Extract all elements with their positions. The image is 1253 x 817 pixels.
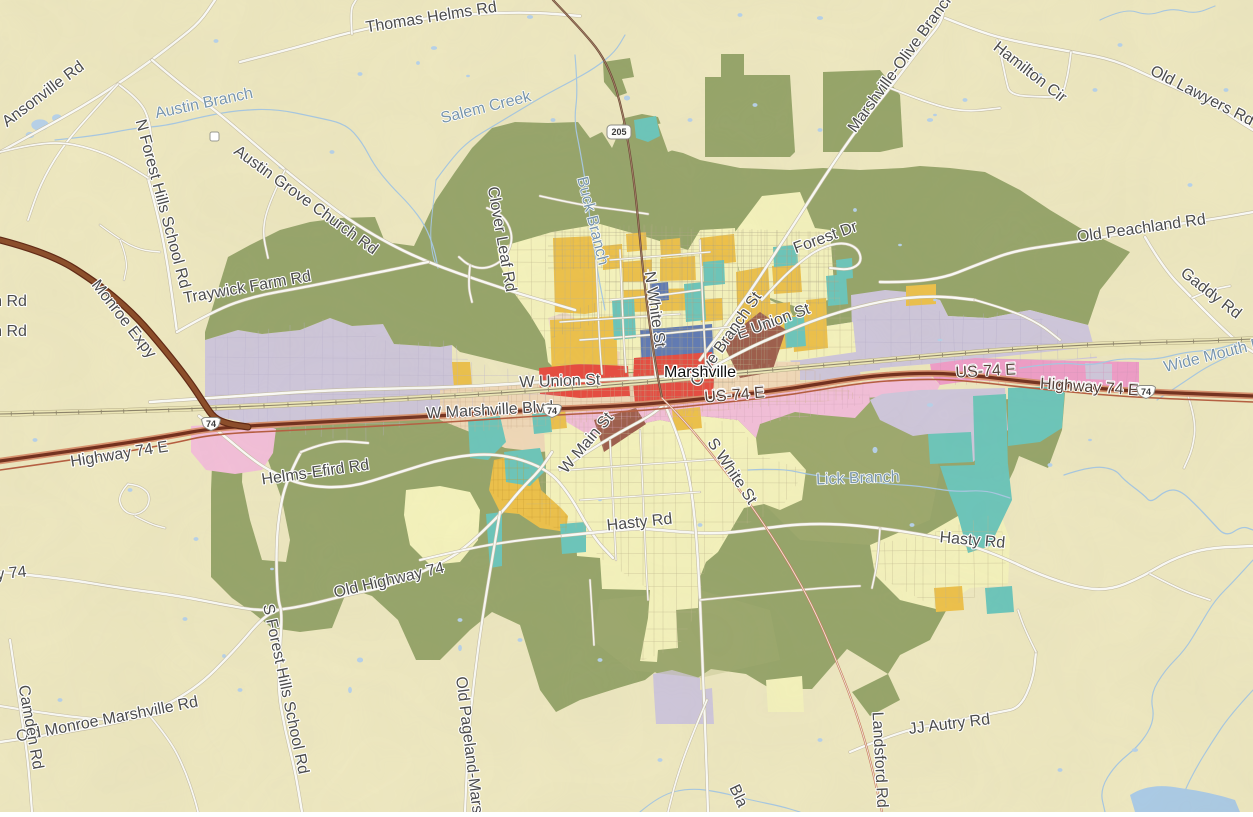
- svg-text:US-74 E: US-74 E: [955, 361, 1016, 381]
- svg-text:Lick Branch: Lick Branch: [816, 469, 900, 489]
- svg-text:Marshville: Marshville: [664, 364, 736, 381]
- svg-text:74: 74: [547, 406, 557, 416]
- svg-text:h Rd: h Rd: [0, 293, 27, 310]
- svg-text:74: 74: [1141, 387, 1151, 397]
- svg-text:W Union St: W Union St: [519, 372, 601, 392]
- svg-text:205: 205: [611, 127, 626, 137]
- svg-text:n Rd: n Rd: [0, 323, 27, 340]
- svg-text:74: 74: [206, 419, 216, 429]
- svg-text:y 74: y 74: [0, 563, 28, 583]
